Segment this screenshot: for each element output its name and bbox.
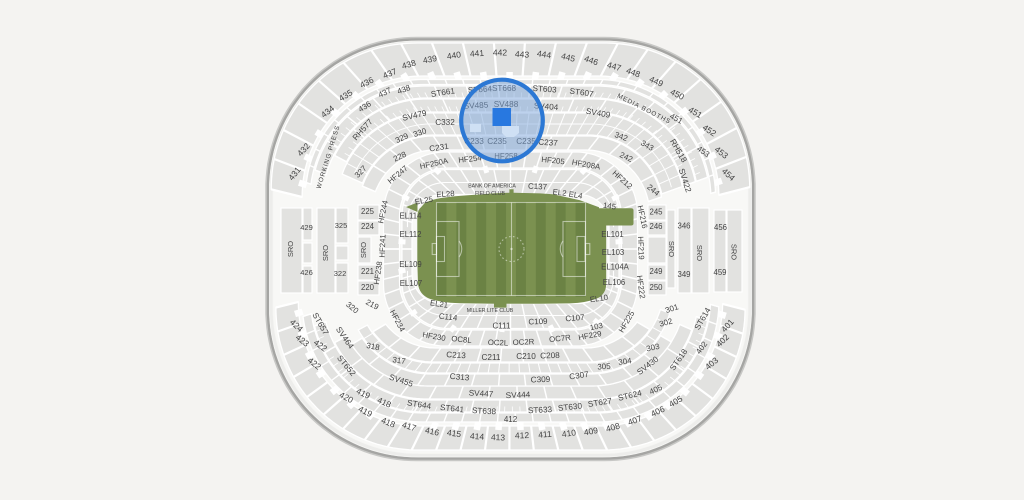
svg-text:429: 429 bbox=[300, 223, 313, 232]
svg-text:C332: C332 bbox=[435, 118, 455, 127]
svg-text:225: 225 bbox=[361, 207, 375, 216]
svg-text:325: 325 bbox=[335, 221, 348, 230]
svg-text:349: 349 bbox=[677, 270, 690, 279]
svg-text:EL114: EL114 bbox=[400, 212, 423, 221]
svg-text:414: 414 bbox=[470, 431, 485, 442]
svg-text:305: 305 bbox=[597, 362, 611, 372]
svg-text:C309: C309 bbox=[531, 375, 551, 385]
svg-text:304: 304 bbox=[618, 356, 633, 367]
svg-text:459: 459 bbox=[713, 268, 726, 277]
svg-text:ST638: ST638 bbox=[472, 406, 497, 416]
svg-text:SV447: SV447 bbox=[469, 389, 494, 399]
svg-text:245: 245 bbox=[649, 208, 663, 217]
svg-text:413: 413 bbox=[491, 432, 506, 442]
svg-text:412: 412 bbox=[515, 430, 530, 440]
svg-text:412: 412 bbox=[504, 415, 518, 424]
svg-text:OC2L: OC2L bbox=[488, 338, 509, 348]
svg-text:ST633: ST633 bbox=[528, 405, 553, 415]
svg-text:317: 317 bbox=[392, 355, 407, 366]
svg-text:EL109: EL109 bbox=[399, 260, 422, 269]
svg-text:BANK OF AMERICA: BANK OF AMERICA bbox=[468, 183, 516, 189]
svg-text:145: 145 bbox=[602, 201, 617, 212]
svg-text:441: 441 bbox=[470, 48, 485, 59]
svg-text:EL28: EL28 bbox=[436, 189, 455, 199]
svg-text:MILLER LITE CLUB: MILLER LITE CLUB bbox=[467, 308, 514, 314]
svg-text:EL2: EL2 bbox=[552, 187, 567, 198]
svg-text:FIELD CLUB: FIELD CLUB bbox=[475, 191, 506, 197]
svg-text:249: 249 bbox=[649, 267, 662, 276]
svg-text:322: 322 bbox=[334, 269, 347, 278]
svg-text:EL101: EL101 bbox=[601, 230, 624, 239]
svg-text:415: 415 bbox=[446, 427, 462, 439]
svg-text:410: 410 bbox=[561, 427, 577, 439]
svg-text:EL106: EL106 bbox=[603, 278, 626, 287]
svg-text:221: 221 bbox=[361, 267, 374, 276]
svg-text:C213: C213 bbox=[446, 350, 466, 360]
svg-text:C208: C208 bbox=[540, 351, 560, 361]
svg-text:250: 250 bbox=[649, 283, 663, 292]
svg-text:EL107: EL107 bbox=[400, 279, 423, 288]
svg-text:HF219: HF219 bbox=[636, 236, 646, 260]
svg-text:C210: C210 bbox=[516, 352, 536, 361]
svg-text:SRO: SRO bbox=[730, 244, 739, 260]
svg-text:EL104A: EL104A bbox=[601, 263, 630, 272]
svg-text:442: 442 bbox=[493, 47, 507, 57]
svg-text:C211: C211 bbox=[482, 353, 501, 362]
svg-text:SRO: SRO bbox=[359, 242, 368, 258]
svg-text:C137: C137 bbox=[528, 182, 548, 192]
svg-text:SRO: SRO bbox=[321, 245, 330, 261]
svg-text:HF241: HF241 bbox=[378, 234, 388, 258]
svg-text:C109: C109 bbox=[528, 317, 548, 327]
svg-text:C237: C237 bbox=[538, 138, 558, 148]
svg-text:220: 220 bbox=[361, 283, 375, 292]
svg-text:OC2R: OC2R bbox=[512, 337, 534, 347]
svg-text:346: 346 bbox=[677, 222, 690, 231]
svg-text:246: 246 bbox=[649, 222, 662, 231]
svg-text:C313: C313 bbox=[449, 372, 470, 383]
svg-text:411: 411 bbox=[538, 429, 553, 440]
svg-text:SRO: SRO bbox=[286, 241, 295, 257]
svg-text:224: 224 bbox=[361, 222, 375, 231]
svg-text:456: 456 bbox=[714, 223, 727, 232]
svg-text:SRO: SRO bbox=[667, 241, 676, 257]
svg-text:EL103: EL103 bbox=[602, 248, 625, 257]
svg-text:C107: C107 bbox=[565, 313, 585, 324]
svg-text:SV444: SV444 bbox=[506, 390, 531, 400]
svg-text:443: 443 bbox=[515, 49, 530, 60]
svg-text:C111: C111 bbox=[493, 322, 511, 331]
svg-text:SRO: SRO bbox=[695, 245, 704, 261]
svg-text:426: 426 bbox=[300, 268, 313, 277]
svg-text:EL112: EL112 bbox=[400, 230, 422, 239]
svg-text:ST603: ST603 bbox=[532, 84, 557, 95]
